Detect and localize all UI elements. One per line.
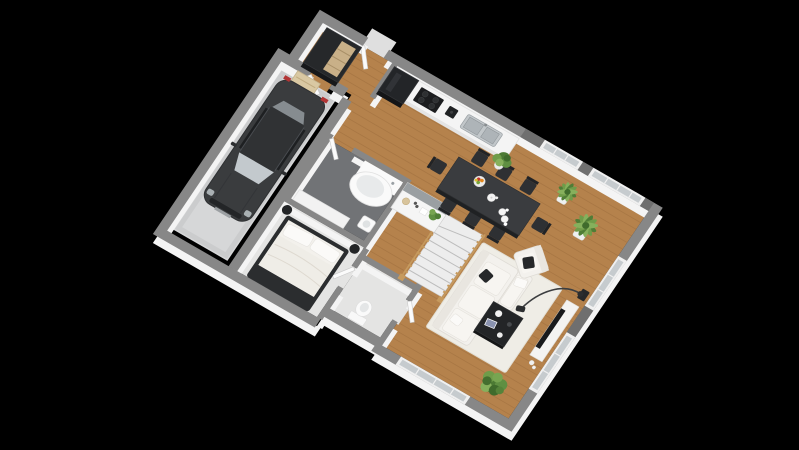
armchair-black-cushion [522, 256, 535, 269]
floor-plan-render [0, 0, 799, 450]
floor-plan-svg [0, 0, 799, 450]
